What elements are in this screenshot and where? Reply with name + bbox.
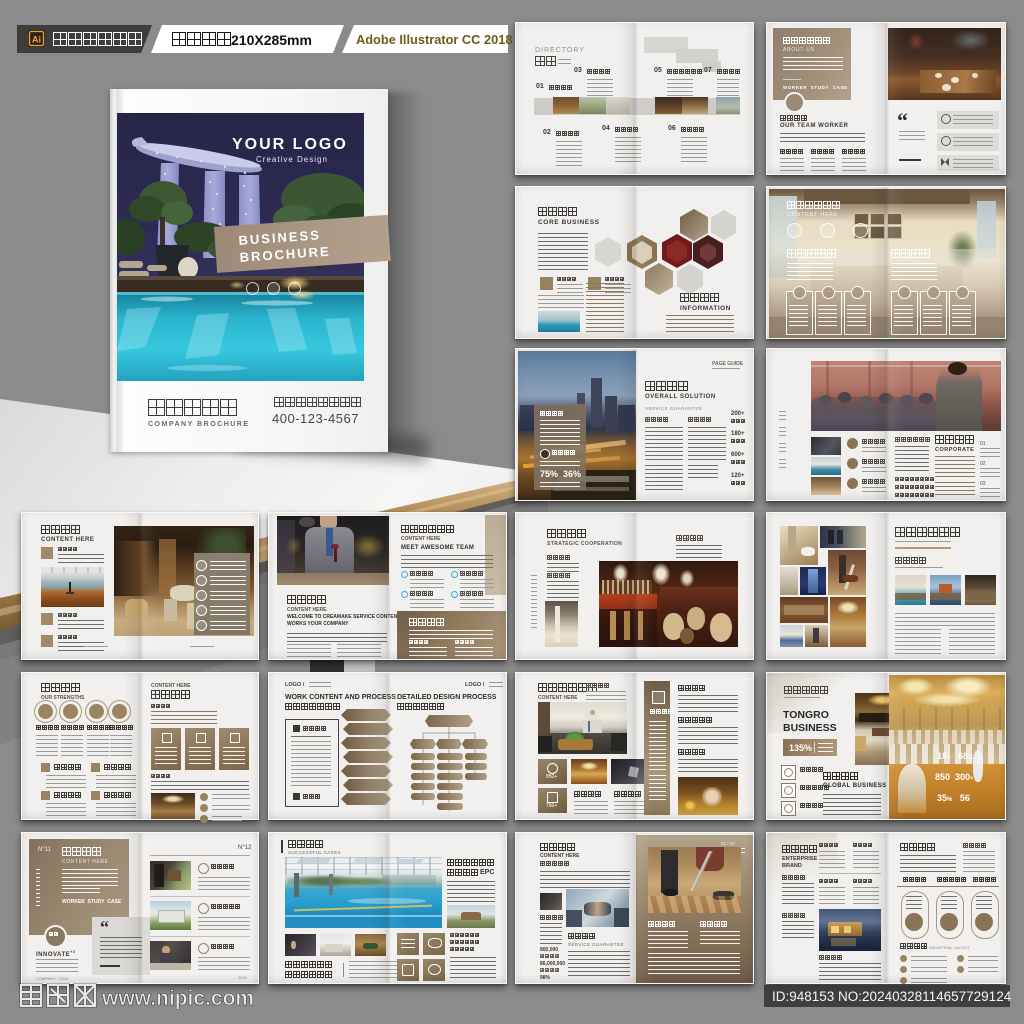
svg-text:www.nipic.com: www.nipic.com [101, 987, 254, 1010]
svg-text:Ai: Ai [32, 35, 41, 45]
